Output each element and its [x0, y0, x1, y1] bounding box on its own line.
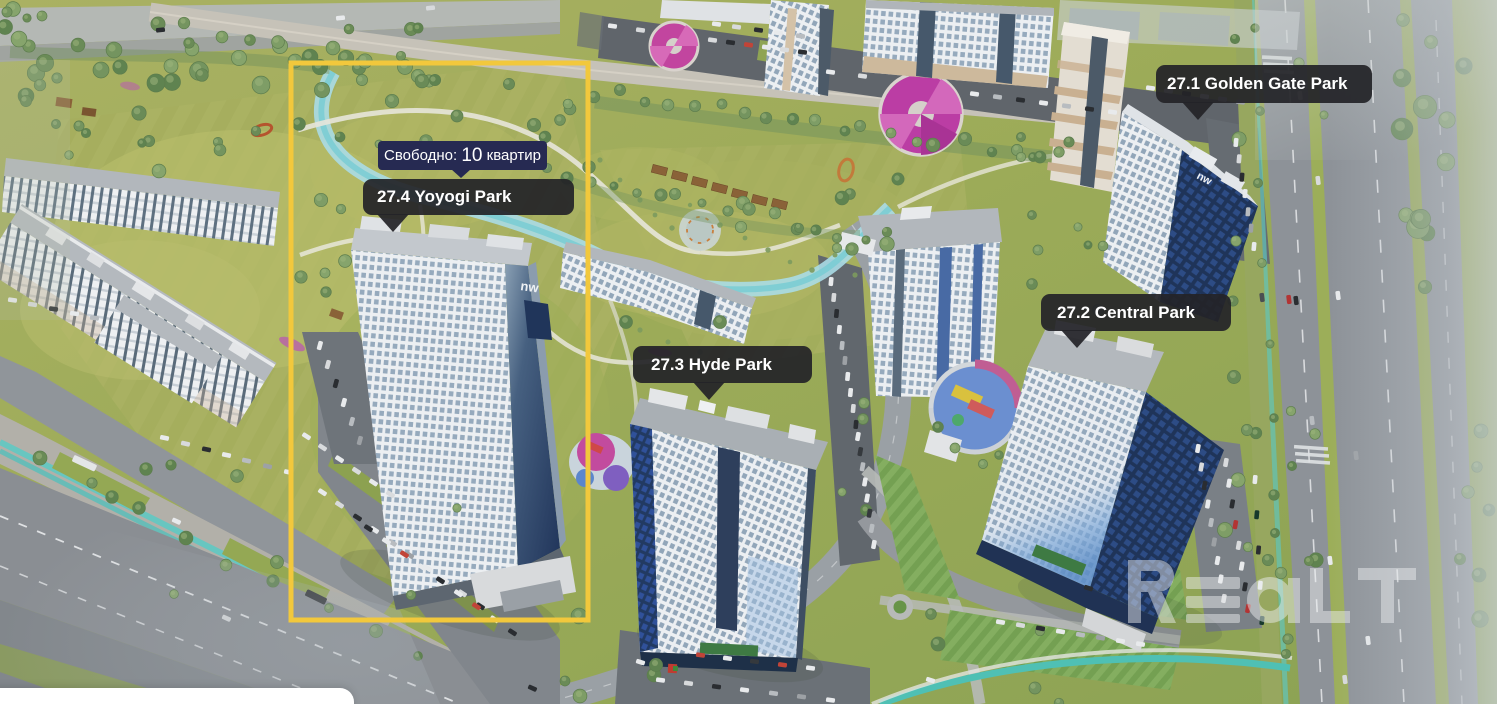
svg-text:nw: nw — [520, 278, 541, 295]
